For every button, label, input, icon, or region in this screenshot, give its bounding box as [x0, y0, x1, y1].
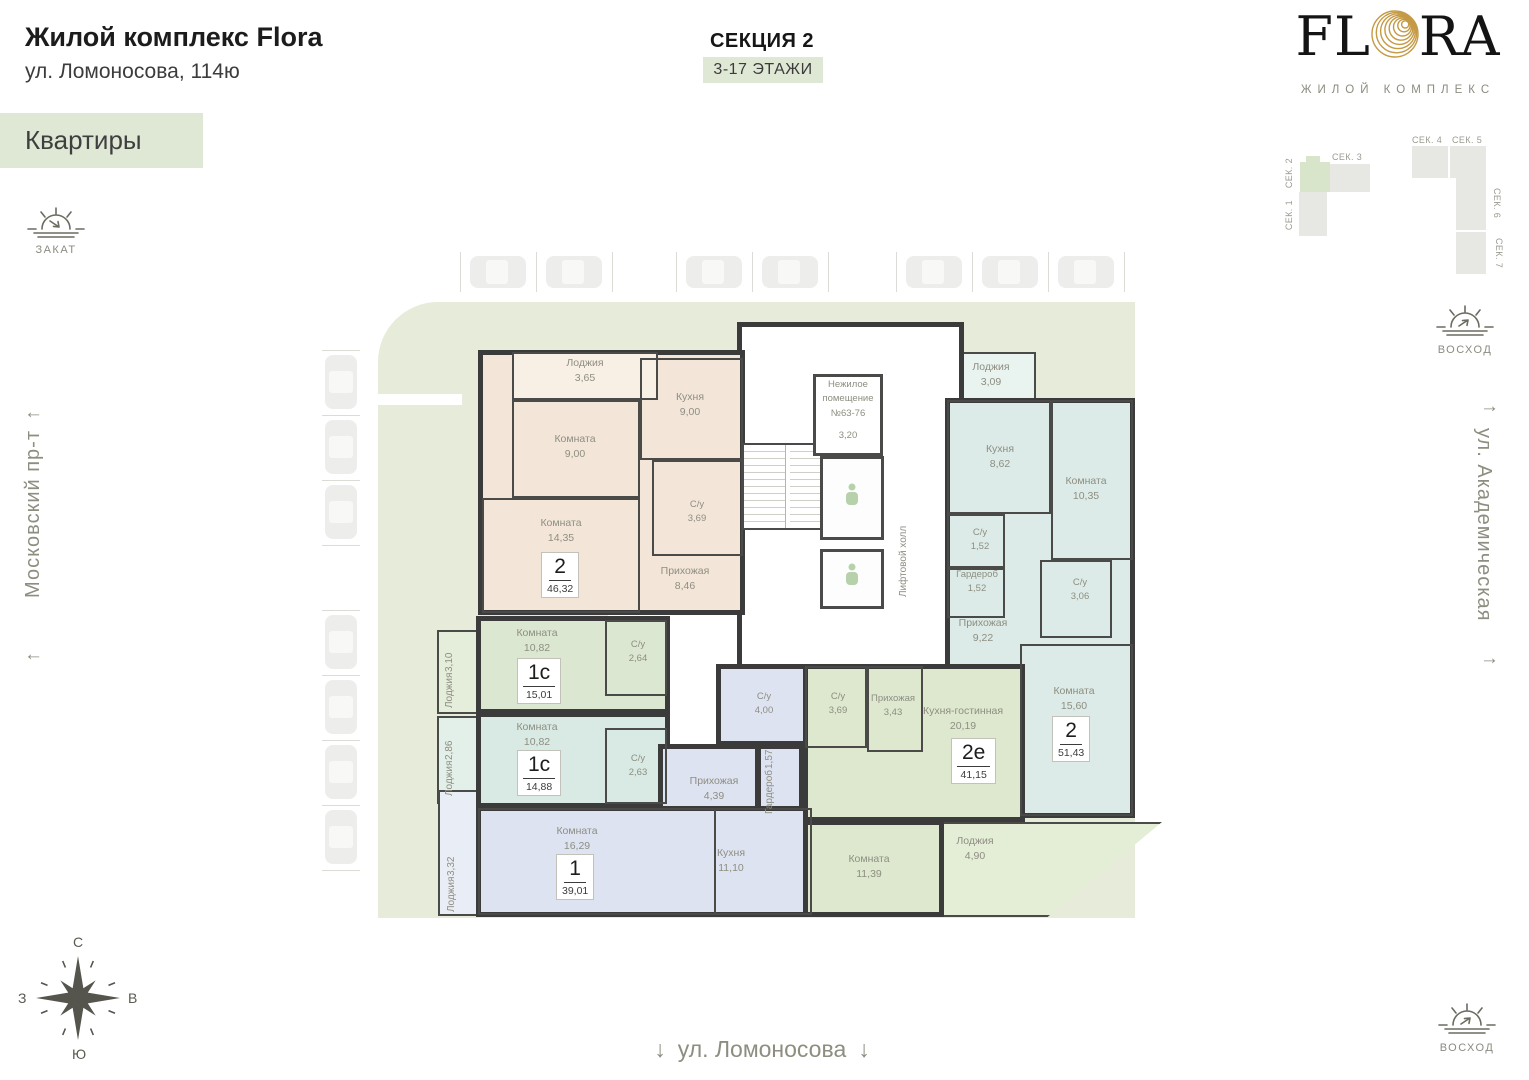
badge-area: 15,01 — [526, 687, 552, 701]
badge-area: 51,43 — [1058, 745, 1084, 759]
car-icon — [325, 810, 357, 864]
street-right-arrow-top: → — [1480, 396, 1499, 418]
room-label-vertical: Гардероб1,57 — [764, 750, 775, 814]
parking-slot-divider — [322, 610, 360, 611]
car-icon — [325, 420, 357, 474]
badge-type: 2 — [1060, 720, 1082, 745]
nonresidential-label: Нежилое помещение №63-76 3,20 — [788, 378, 908, 443]
stairs — [742, 443, 828, 530]
miniplan-sek2-notch — [1306, 156, 1320, 164]
beige-loggia — [512, 352, 658, 400]
apartment-badge-2-51[interactable]: 2 51,43 — [1052, 716, 1090, 762]
apartment-badge-1c-14[interactable]: 1с 14,88 — [517, 750, 561, 796]
street-bottom: ↓ ул. Ломоносова ↓ — [540, 1036, 984, 1063]
apartment-badge-1c-15[interactable]: 1с 15,01 — [517, 658, 561, 704]
street-right-arrow-bottom: → — [1480, 648, 1499, 670]
beige-room1 — [512, 400, 640, 498]
badge-area: 41,15 — [961, 767, 987, 781]
flora-logo: FL RA — [1280, 8, 1516, 65]
elevator-person-icon — [842, 482, 862, 513]
room-area: 3,32 — [446, 856, 457, 875]
badge-type: 1 — [564, 858, 586, 883]
car-icon — [982, 256, 1038, 288]
car-icon — [762, 256, 818, 288]
sunset-label: ЗАКАТ — [24, 244, 88, 256]
car-icon — [325, 680, 357, 734]
sunrise-icon-top — [1433, 300, 1497, 345]
car-icon — [470, 256, 526, 288]
miniplan-sek4-block[interactable] — [1412, 146, 1448, 178]
apartments-tag[interactable]: Квартиры — [0, 113, 203, 168]
street-bottom-arrow-left: ↓ — [654, 1036, 666, 1063]
teal-kitchen — [947, 400, 1051, 514]
compass-east: В — [128, 990, 137, 1006]
nonres-line1: Нежилое — [788, 378, 908, 392]
walkway — [378, 394, 462, 405]
floors-badge-label: 3-17 ЭТАЖИ — [713, 61, 812, 79]
badge-area: 14,88 — [526, 779, 552, 793]
green2e-hall — [867, 666, 923, 752]
green2e-room-block[interactable] — [803, 820, 944, 917]
apartment-badge-1-39[interactable]: 1 39,01 — [556, 854, 594, 900]
parking-slot-divider — [896, 252, 897, 292]
badge-type: 1с — [523, 754, 555, 779]
miniplan-sek4-label: СЕК. 4 — [1412, 135, 1442, 145]
floors-badge: 3-17 ЭТАЖИ — [703, 57, 823, 83]
miniplan-sek7-block[interactable] — [1456, 232, 1486, 274]
room-name: Лоджия — [444, 761, 455, 796]
section-title: СЕКЦИЯ 2 — [662, 30, 862, 53]
miniplan-sek6-block[interactable] — [1456, 178, 1486, 230]
parking-slot-divider — [322, 870, 360, 871]
street-left-label: Московский пр-т — [22, 430, 45, 598]
miniplan-sek2-block[interactable] — [1300, 162, 1330, 192]
street-right-label: ул. Академическая — [1472, 428, 1495, 621]
room-area: 2,86 — [444, 740, 455, 759]
blue-loggia — [438, 790, 478, 916]
car-icon — [325, 745, 357, 799]
compass-south: Ю — [72, 1046, 86, 1062]
compass-icon — [33, 953, 123, 1048]
miniplan-sek1-block[interactable] — [1299, 192, 1327, 236]
nonres-line3: №63-76 — [788, 407, 908, 421]
street-left-arrow-bottom: ← — [24, 644, 43, 666]
parking-slot-divider — [322, 740, 360, 741]
parking-slot-divider — [1124, 252, 1125, 292]
car-icon — [1058, 256, 1114, 288]
logo-spiral-icon — [1369, 8, 1421, 65]
nonres-area: 3,20 — [788, 429, 908, 443]
teal-room1 — [1051, 400, 1133, 560]
parking-slot-divider — [536, 252, 537, 292]
parking-slot-divider — [612, 252, 613, 292]
logo-left: FL — [1296, 10, 1371, 64]
apartments-tag-label: Квартиры — [25, 125, 142, 156]
sunrise-label-top: ВОСХОД — [1433, 344, 1497, 356]
miniplan-sek3-label: СЕК. 3 — [1332, 152, 1362, 162]
page-title: Жилой комплекс Flora — [25, 22, 322, 53]
miniplan-sek2-label: СЕК. 2 — [1284, 158, 1294, 188]
blue-kitchen — [714, 808, 812, 915]
street-bottom-arrow-right: ↓ — [858, 1036, 870, 1063]
teal-wardrobe — [947, 568, 1005, 618]
lift-hall-text: Лифтовой холл — [898, 526, 909, 597]
studio1-su — [605, 620, 667, 696]
miniplan-sek7-label: СЕК. 7 — [1494, 238, 1504, 268]
sunrise-icon-bottom — [1435, 998, 1499, 1043]
room-label-vertical: Лоджия2,86 — [444, 726, 455, 796]
parking-slot-divider — [322, 415, 360, 416]
badge-type: 2е — [957, 742, 990, 767]
miniplan-sek6-label: СЕК. 6 — [1492, 188, 1502, 218]
apartment-badge-2-46[interactable]: 2 46,32 — [541, 552, 579, 598]
parking-slot-divider — [972, 252, 973, 292]
beige-bathroom — [652, 460, 743, 556]
room-name: Гардероб — [764, 770, 775, 814]
miniplan-sek1-label: СЕК. 1 — [1284, 200, 1294, 230]
green2e-su — [805, 666, 867, 748]
teal-su1 — [947, 514, 1005, 568]
parking-slot-divider — [676, 252, 677, 292]
logo-subtitle: ЖИЛОЙ КОМПЛЕКС — [1280, 84, 1516, 96]
room-area: 1,57 — [764, 750, 775, 769]
lift-hall-label: Лифтовой холл — [898, 462, 909, 597]
miniplan-sek3-block[interactable] — [1330, 164, 1370, 192]
room-name: Лоджия — [444, 673, 455, 708]
studio2-su — [605, 728, 667, 804]
badge-type: 1с — [523, 662, 555, 687]
parking-slot-divider — [1048, 252, 1049, 292]
parking-slot-divider — [752, 252, 753, 292]
sunset-icon — [24, 202, 88, 247]
badge-type: 2 — [549, 556, 571, 581]
room-name: Лоджия — [446, 877, 457, 912]
room-area: 3,10 — [444, 652, 455, 671]
room-label-vertical: Лоджия3,10 — [444, 638, 455, 708]
blue-su-block[interactable] — [716, 664, 808, 746]
room-label-vertical: Лоджия3,32 — [446, 842, 457, 912]
beige-kitchen — [640, 358, 743, 460]
street-left-arrow-top: ← — [24, 402, 43, 424]
car-icon — [686, 256, 742, 288]
parking-slot-divider — [322, 545, 360, 546]
car-icon — [906, 256, 962, 288]
parking-slot-divider — [322, 350, 360, 351]
parking-slot-divider — [322, 675, 360, 676]
miniplan-sek5-block[interactable] — [1450, 146, 1486, 178]
badge-area: 39,01 — [562, 883, 588, 897]
nonres-line2: помещение — [788, 392, 908, 406]
sunrise-label-bottom: ВОСХОД — [1435, 1042, 1499, 1054]
logo-right: RA — [1419, 10, 1501, 64]
blue-room — [478, 808, 716, 915]
car-icon — [325, 485, 357, 539]
stairs-divider — [785, 445, 790, 528]
parking-slot-divider — [322, 480, 360, 481]
car-icon — [546, 256, 602, 288]
badge-area: 46,32 — [547, 581, 573, 595]
apartment-badge-2e-41[interactable]: 2е 41,15 — [951, 738, 996, 784]
teal-su2 — [1040, 560, 1112, 638]
parking-slot-divider — [322, 805, 360, 806]
address: ул. Ломоносова, 114ю — [25, 60, 240, 84]
floor-plan-page: Жилой комплекс Flora ул. Ломоносова, 114… — [0, 0, 1529, 1080]
elevator-person-icon — [842, 562, 862, 593]
car-icon — [325, 615, 357, 669]
street-bottom-label: ул. Ломоносова — [678, 1036, 846, 1063]
parking-slot-divider — [828, 252, 829, 292]
compass-north: С — [73, 934, 83, 950]
compass-west: З — [18, 990, 26, 1006]
miniplan-sek5-label: СЕК. 5 — [1452, 135, 1482, 145]
car-icon — [325, 355, 357, 409]
parking-slot-divider — [460, 252, 461, 292]
